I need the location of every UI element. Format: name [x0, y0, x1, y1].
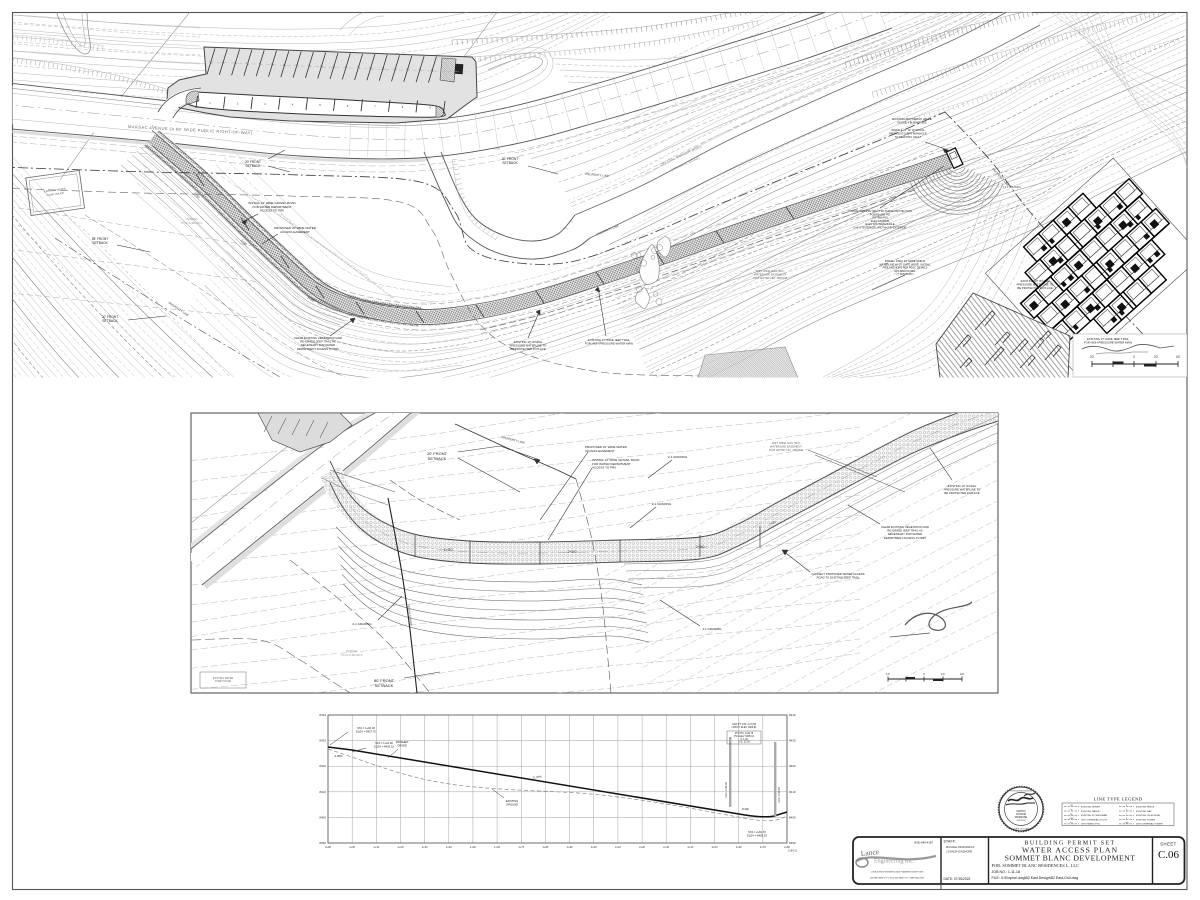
svg-text:ACCESS EASEMENT: ACCESS EASEMENT	[280, 230, 310, 234]
svg-text:1+00: 1+00	[349, 845, 355, 849]
svg-text:EXISTING WATER: EXISTING WATER	[1081, 810, 1100, 813]
svg-text:SETBACK: SETBACK	[375, 683, 394, 688]
svg-text:C.06: C.06	[1158, 849, 1180, 861]
svg-text:DEPARTMENT ACCESS TO PRV: DEPARTMENT ACCESS TO PRV	[297, 347, 339, 351]
svg-text:W: W	[1071, 810, 1073, 812]
svg-text:PCA-S-98-3D-1: PCA-S-98-3D-1	[181, 221, 202, 225]
svg-text:ACCESS EASEMENT: ACCESS EASEMENT	[585, 449, 615, 453]
svg-text:SOMMET BLANC DEVELOPMENT: SOMMET BLANC DEVELOPMENT	[1005, 854, 1136, 863]
svg-text:STATE OF UTAH: STATE OF UTAH	[1013, 828, 1029, 831]
svg-text:MICHAEL DESKIEWICZ: MICHAEL DESKIEWICZ	[946, 845, 975, 849]
svg-text:265 EAST MAIN ST P.O. BOX 266: 265 EAST MAIN ST P.O. BOX 2664 PARK CITY…	[870, 877, 924, 880]
svg-text:LINE TYPE LEGEND: LINE TYPE LEGEND	[1094, 797, 1143, 802]
svg-text:1+40: 1+40	[446, 845, 452, 849]
svg-text:SITE OVERHEAD POWER: SITE OVERHEAD POWER	[1136, 823, 1163, 826]
svg-text:EXISTING FENCE: EXISTING FENCE	[1136, 807, 1155, 809]
svg-text:SETBACK: SETBACK	[502, 161, 518, 165]
svg-text:SETBACK: SETBACK	[102, 319, 118, 323]
svg-text:8390: 8390	[789, 841, 796, 845]
svg-text:1+90: 1+90	[567, 845, 573, 849]
svg-text:1+50: 1+50	[470, 845, 476, 849]
svg-text:8420: 8420	[789, 764, 796, 768]
svg-text:ELEV = 8427.70: ELEV = 8427.70	[356, 730, 376, 734]
svg-text:2-1 GRADING: 2-1 GRADING	[652, 502, 672, 506]
svg-text:PVI STA: 2+69.75: PVI STA: 2+69.75	[735, 732, 754, 735]
svg-text:8440: 8440	[789, 713, 796, 717]
svg-text:2+00: 2+00	[567, 549, 577, 554]
svg-text:STA = 2+81.70: STA = 2+81.70	[748, 830, 766, 834]
svg-text:BE PROTECTED IN PLACE: BE PROTECTED IN PLACE	[1017, 286, 1052, 290]
svg-text:-8.300: -8.300	[741, 807, 749, 811]
svg-text:L=4'-6" EXTERIOR, WIDTH=7'-6": L=4'-6" EXTERIOR, WIDTH=7'-6" EXTERIOR	[854, 226, 907, 230]
svg-text:DATE: 07/15/2022: DATE: 07/15/2022	[944, 877, 971, 881]
svg-text:SITE OVERHEAD UTILITY: SITE OVERHEAD UTILITY	[1081, 818, 1108, 821]
svg-text:2+40: 2+40	[687, 845, 693, 849]
svg-text:CONNOR DINSMORE: CONNOR DINSMORE	[946, 850, 972, 854]
svg-text:ENCL 2408.65: ENCL 2408.65	[725, 782, 728, 798]
svg-text:OHU: OHU	[1069, 818, 1074, 820]
svg-text:11377222: 11377222	[1016, 820, 1026, 822]
svg-text:1+80: 1+80	[542, 845, 548, 849]
svg-text:1+50: 1+50	[443, 547, 453, 552]
svg-text:8430: 8430	[789, 739, 796, 743]
svg-text:JOB NO.: 1-11-18: JOB NO.: 1-11-18	[992, 870, 1021, 874]
svg-text:EXISTING TELEPHONE: EXISTING TELEPHONE	[1136, 815, 1161, 817]
svg-text:CONSULTING ENGINEERS LAND PL: CONSULTING ENGINEERS LAND PLANNERS SURVE…	[871, 871, 924, 874]
svg-text:2+30: 2+30	[663, 845, 669, 849]
svg-text:8390: 8390	[319, 841, 326, 845]
svg-text:1+10: 1+10	[373, 845, 379, 849]
svg-text:SETBACK: SETBACK	[92, 241, 108, 245]
svg-text:FOR HIGH PRESSURE WATER MAIN: FOR HIGH PRESSURE WATER MAIN	[585, 342, 633, 346]
svg-text:8400: 8400	[319, 815, 326, 819]
svg-text:2+50: 2+50	[695, 544, 705, 549]
svg-text:BE PROTECTED IN PLACE: BE PROTECTED IN PLACE	[944, 491, 979, 495]
svg-text:1+60: 1+60	[494, 845, 500, 849]
svg-text:8430: 8430	[319, 739, 326, 743]
svg-text:Engineering Inc.: Engineering Inc.	[874, 859, 914, 865]
svg-text:STA = 1+10.00: STA = 1+10.00	[375, 741, 393, 745]
svg-text:FOR HIGH PRESSURE WATER MAIN: FOR HIGH PRESSURE WATER MAIN	[1084, 341, 1132, 345]
svg-text:DINSMORE: DINSMORE	[1015, 817, 1028, 819]
svg-text:2+50: 2+50	[712, 845, 718, 849]
svg-text:ACCESS TO PRV: ACCESS TO PRV	[592, 466, 616, 470]
svg-text:ELEV = 8425.32: ELEV = 8425.32	[374, 745, 394, 749]
svg-text:2+10: 2+10	[615, 845, 621, 849]
svg-text:SETBACK: SETBACK	[428, 456, 447, 461]
svg-text:(7' MIN BURY): (7' MIN BURY)	[896, 272, 913, 276]
svg-text:2+84.21: 2+84.21	[788, 850, 798, 853]
svg-text:8440: 8440	[319, 713, 326, 717]
svg-text:2:1 GRADING: 2:1 GRADING	[702, 627, 722, 631]
svg-text:PROFESSIONAL ENGINEER: PROFESSIONAL ENGINEER	[1010, 790, 1033, 793]
svg-text:EXISTING GAS: EXISTING GAS	[1136, 810, 1152, 813]
svg-text:GRADE: GRADE	[397, 744, 407, 748]
svg-text:FILE: X:\Empire\.dwg\B2 East D: FILE: X:\Empire\.dwg\B2 East Design\B2 E…	[992, 876, 1079, 880]
svg-text:10': 10'	[886, 672, 890, 676]
svg-text:PUMP HOUSE: PUMP HOUSE	[215, 680, 231, 683]
svg-text:2+80: 2+80	[784, 845, 790, 849]
svg-text:LOW PT. STA: 2+70.65: LOW PT. STA: 2+70.65	[732, 723, 756, 726]
svg-text:ENCL 2408.65: ENCL 2408.65	[778, 787, 781, 803]
svg-text:TO NEW PRV VAULT: TO NEW PRV VAULT	[895, 135, 922, 139]
svg-text:ROAD TO EXISTING JEEP TRAIL: ROAD TO EXISTING JEEP TRAIL	[817, 576, 860, 580]
svg-text:10': 10'	[941, 672, 945, 676]
svg-text:PLAT ENTRY NO. 1807036: PLAT ENTRY NO. 1807036	[753, 276, 788, 280]
svg-text:OHP: OHP	[1124, 822, 1129, 824]
svg-text:8410: 8410	[789, 790, 796, 794]
svg-text:8410: 8410	[319, 790, 326, 794]
svg-text:8420: 8420	[319, 764, 326, 768]
svg-text:2-1 GRADING: 2-1 GRADING	[668, 455, 688, 459]
svg-text:STAFF:: STAFF:	[944, 840, 957, 844]
svg-text:40': 40'	[1176, 355, 1181, 359]
svg-text:2-1 GRADING: 2-1 GRADING	[352, 622, 372, 626]
svg-text:EXISTING POWER: EXISTING POWER	[1136, 819, 1156, 821]
svg-text:-2.38%: -2.38%	[334, 754, 343, 758]
svg-text:LOW PT ELEV: 8406.81: LOW PT ELEV: 8406.81	[732, 727, 757, 729]
svg-text:SETBACK: SETBACK	[246, 164, 262, 168]
svg-text:GROUND: GROUND	[506, 803, 518, 807]
svg-text:SHEET: SHEET	[1160, 842, 1176, 847]
svg-text:DEPARTMENT ACCESS TO PRV: DEPARTMENT ACCESS TO PRV	[884, 536, 926, 540]
svg-text:20': 20'	[1090, 355, 1095, 359]
svg-text:EXISTING STORM DRAIN: EXISTING STORM DRAIN	[1081, 814, 1108, 817]
svg-text:1+70: 1+70	[518, 845, 524, 849]
svg-text:1+30: 1+30	[422, 845, 428, 849]
svg-text:2+60: 2+60	[736, 845, 742, 849]
svg-text:PVI ELEV: 8405.04: PVI ELEV: 8405.04	[734, 736, 754, 738]
svg-text:0+90: 0+90	[325, 845, 331, 849]
svg-text:SITE FIBER OPTIC: SITE FIBER OPTIC	[1081, 824, 1101, 826]
svg-text:2+70: 2+70	[760, 845, 766, 849]
svg-text:20': 20'	[960, 672, 964, 676]
svg-text:BE PROTECTED IN PLACE: BE PROTECTED IN PLACE	[510, 347, 545, 351]
svg-text:EXISTING: EXISTING	[506, 799, 519, 803]
svg-text:2+20: 2+20	[639, 845, 645, 849]
svg-text:EXISTING SEWER: EXISTING SEWER	[1081, 807, 1100, 809]
svg-text:ELEV = 8408.25: ELEV = 8408.25	[747, 834, 767, 838]
svg-text:MARTIN: MARTIN	[1017, 810, 1026, 813]
svg-text:2+00: 2+00	[591, 845, 597, 849]
svg-text:0: 0	[1133, 355, 1135, 359]
svg-text:STA = 1+00.00: STA = 1+00.00	[357, 726, 375, 730]
svg-text:8400: 8400	[789, 815, 796, 819]
svg-text:INSIDE 4'Ø MANHOLE: INSIDE 4'Ø MANHOLE	[898, 121, 927, 125]
svg-text:CONNOR: CONNOR	[1016, 814, 1027, 816]
svg-text:20': 20'	[1154, 355, 1159, 359]
svg-text:PCA-S-99-3D-1: PCA-S-99-3D-1	[341, 653, 362, 657]
svg-text:ACCESS TO PRV: ACCESS TO PRV	[260, 209, 284, 213]
svg-text:(435) 649-4187: (435) 649-4187	[914, 841, 934, 845]
svg-text:1'S 1 GRADING: 1'S 1 GRADING	[1003, 185, 1022, 189]
svg-text:1+20: 1+20	[398, 845, 404, 849]
svg-text:FINISHED: FINISHED	[396, 740, 409, 744]
svg-text:LVC: 25.00: LVC: 25.00	[738, 742, 750, 744]
svg-text:PLAT ENTRY NO. 1807036: PLAT ENTRY NO. 1807036	[769, 448, 804, 452]
svg-text:K: 1.30: K: 1.30	[740, 739, 748, 741]
